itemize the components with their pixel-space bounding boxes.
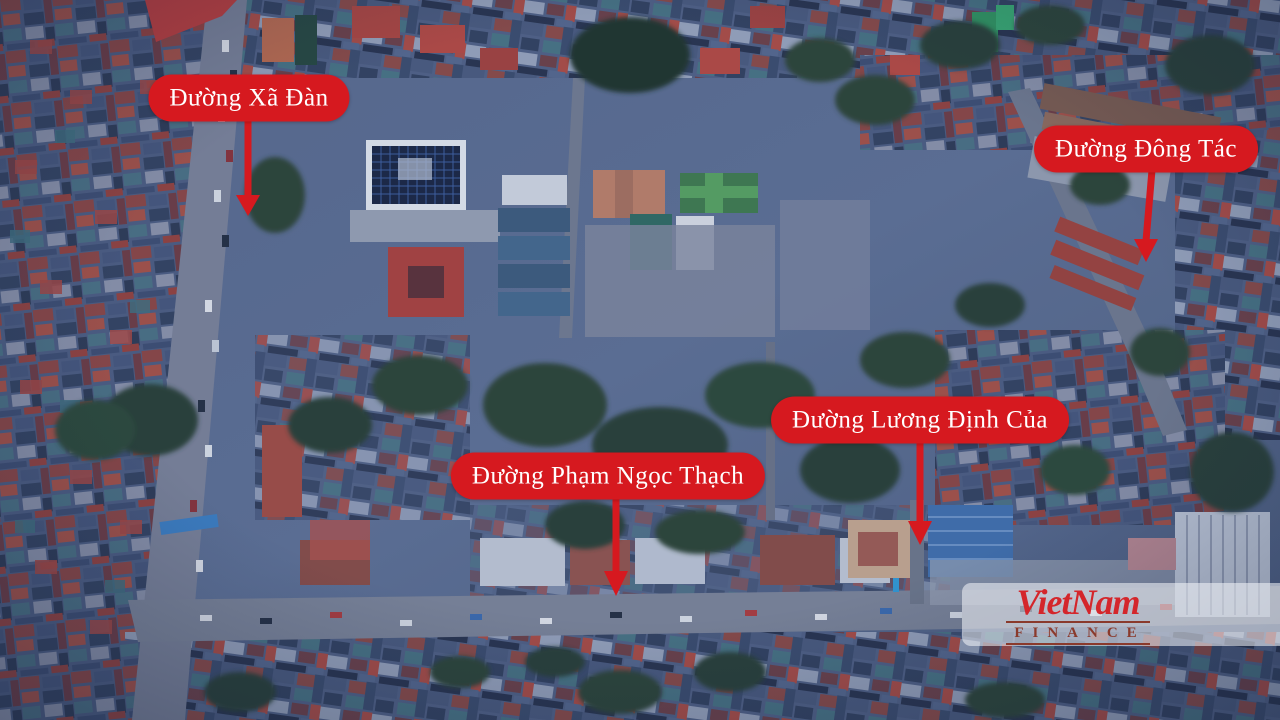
street-label-luong-dinh-cua: Đường Lương Định Của: [771, 397, 1069, 444]
street-label-dong-tac: Đường Đông Tác: [1034, 126, 1258, 173]
vietnam-finance-watermark: VietNam FINANCE: [962, 583, 1280, 646]
annotated-aerial-map: Đường Xã Đàn Đường Đông Tác Đường Lương …: [0, 0, 1280, 720]
watermark-subtitle: FINANCE: [1006, 621, 1149, 645]
street-label-pham-ngoc-thach: Đường Phạm Ngọc Thạch: [451, 453, 765, 500]
street-label-xa-dan: Đường Xã Đàn: [148, 75, 349, 122]
watermark-brand: VietNam: [1016, 584, 1139, 620]
